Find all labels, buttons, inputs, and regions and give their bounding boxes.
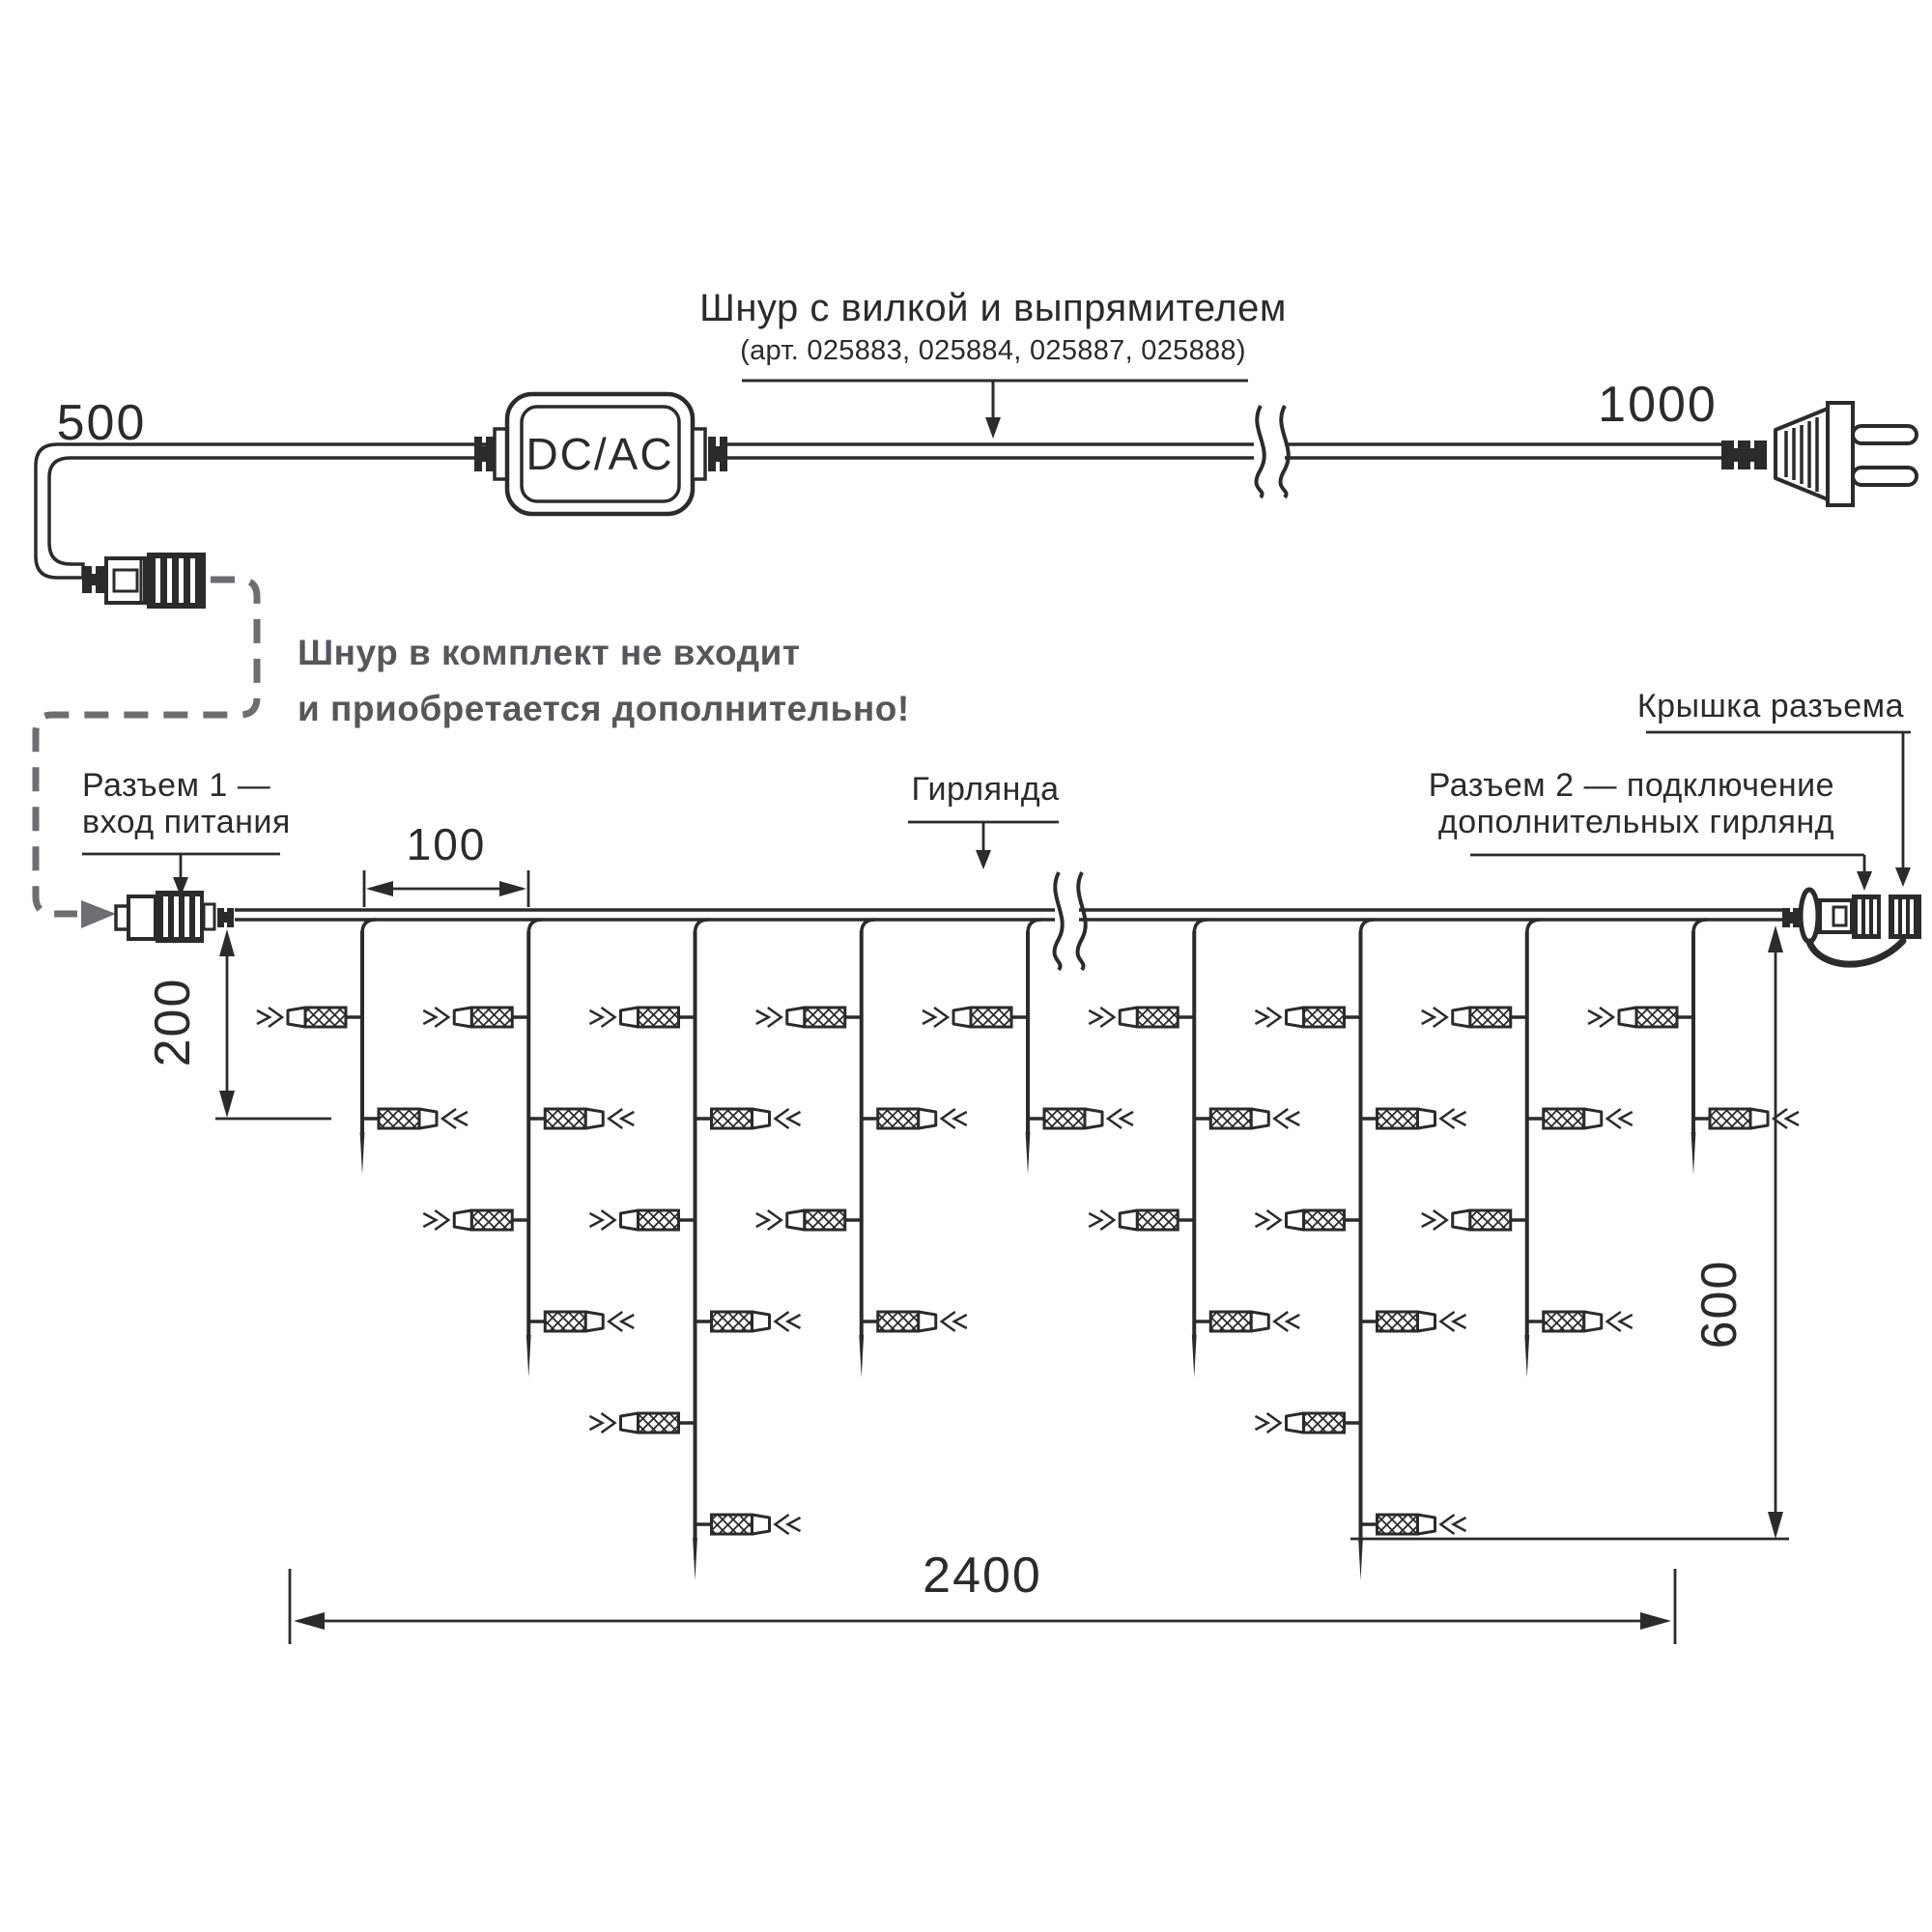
cap-tether-cord bbox=[1809, 941, 1903, 964]
led-bulb-icon bbox=[590, 1210, 696, 1230]
cord-break-symbol bbox=[1256, 406, 1288, 497]
dim-100: 100 bbox=[364, 819, 528, 907]
led-bulb-icon bbox=[862, 1312, 967, 1331]
light-rays-icon bbox=[1454, 1112, 1466, 1125]
dc-ac-label: DC/AC bbox=[526, 429, 673, 479]
light-rays-icon bbox=[923, 1010, 935, 1024]
light-rays-icon bbox=[1089, 1010, 1101, 1024]
led-bulb-icon bbox=[923, 1008, 1028, 1027]
icicle-drops bbox=[257, 920, 1799, 1580]
drop-wire-tip bbox=[693, 1538, 697, 1580]
connector1-arrow bbox=[173, 854, 188, 896]
drop-wire-tip bbox=[1524, 1335, 1529, 1378]
led-bulb-icon bbox=[862, 1109, 967, 1128]
light-rays-icon bbox=[1454, 1315, 1466, 1328]
led-bulb-icon bbox=[756, 1210, 862, 1230]
led-bulb-icon bbox=[590, 1008, 696, 1027]
light-rays-icon bbox=[1287, 1112, 1299, 1125]
light-rays-icon bbox=[1256, 1416, 1268, 1430]
light-rays-icon bbox=[1121, 1112, 1133, 1125]
garland-drop bbox=[257, 920, 468, 1175]
light-rays-icon bbox=[1256, 1010, 1268, 1024]
light-rays-icon bbox=[590, 1010, 603, 1024]
light-rays-icon bbox=[1620, 1112, 1633, 1125]
led-bulb-icon bbox=[590, 1413, 696, 1433]
led-bulb-icon bbox=[1527, 1109, 1633, 1128]
led-bulb-icon bbox=[528, 1312, 634, 1331]
led-bulb-icon bbox=[1194, 1109, 1299, 1128]
light-rays-icon bbox=[1588, 1010, 1601, 1024]
light-rays-icon bbox=[954, 1315, 967, 1328]
light-rays-icon bbox=[621, 1112, 634, 1125]
dim-2400-label: 2400 bbox=[923, 1548, 1042, 1604]
connector1-hardware bbox=[116, 891, 234, 943]
garland-arrow bbox=[976, 822, 991, 869]
dim-600-label: 600 bbox=[1691, 1260, 1747, 1350]
led-bulb-icon bbox=[1089, 1210, 1194, 1230]
connector1-label-line1: Разъем 1 — bbox=[82, 767, 270, 804]
garland-drop bbox=[923, 920, 1133, 1175]
cord-subtitle: (арт. 025883, 025884, 025887, 025888) bbox=[740, 335, 1246, 366]
light-rays-icon bbox=[1786, 1112, 1799, 1125]
cord-title-arrow bbox=[985, 381, 1001, 439]
garland-drop bbox=[756, 920, 967, 1378]
drop-wire-tip bbox=[1192, 1335, 1197, 1378]
garland-label: Гирлянда bbox=[911, 771, 1059, 808]
drop-wire-tip bbox=[526, 1335, 531, 1378]
cord-end-connector bbox=[82, 553, 206, 609]
connector2-leader bbox=[1470, 855, 1872, 891]
led-bulb-icon bbox=[362, 1109, 468, 1128]
garland-wire bbox=[235, 910, 1782, 920]
led-bulb-icon bbox=[423, 1210, 528, 1230]
light-rays-icon bbox=[1089, 1213, 1101, 1227]
led-bulb-icon bbox=[1028, 1109, 1133, 1128]
dim-2400: 2400 bbox=[290, 1548, 1675, 1644]
light-rays-icon bbox=[788, 1518, 801, 1531]
led-bulb-icon bbox=[1361, 1109, 1466, 1128]
led-bulb-icon bbox=[1527, 1312, 1633, 1331]
not-included-arrow bbox=[81, 900, 116, 928]
led-bulb-icon bbox=[696, 1109, 801, 1128]
led-bulb-icon bbox=[1256, 1210, 1361, 1230]
led-bulb-icon bbox=[1256, 1008, 1361, 1027]
garland-drop bbox=[590, 920, 801, 1580]
note-line1: Шнур в комплект не входит bbox=[298, 633, 800, 672]
diagram-page: Шнур с вилкой и выпрямителем (арт. 02588… bbox=[0, 0, 1932, 1932]
light-rays-icon bbox=[954, 1112, 967, 1125]
dc-ac-adapter: DC/AC bbox=[474, 394, 727, 514]
connector2-label-line2: дополнительных гирлянд bbox=[1438, 804, 1834, 840]
light-rays-icon bbox=[788, 1112, 801, 1125]
drop-wire-tip bbox=[1026, 1132, 1031, 1175]
led-bulb-icon bbox=[423, 1008, 528, 1027]
garland-drop bbox=[1422, 920, 1633, 1378]
dim-200-label: 200 bbox=[145, 978, 201, 1067]
power-plug-icon bbox=[1721, 403, 1917, 505]
light-rays-icon bbox=[1422, 1010, 1435, 1024]
light-rays-icon bbox=[1454, 1518, 1466, 1531]
drop-wire-tip bbox=[1358, 1538, 1363, 1580]
drop-wire-tip bbox=[360, 1132, 365, 1175]
light-rays-icon bbox=[1287, 1315, 1299, 1328]
led-bulb-icon bbox=[257, 1008, 362, 1027]
led-bulb-icon bbox=[1693, 1109, 1799, 1128]
led-bulb-icon bbox=[1361, 1312, 1466, 1331]
cap-label: Крышка разъема bbox=[1637, 688, 1904, 724]
garland-drop bbox=[1256, 920, 1466, 1580]
light-rays-icon bbox=[590, 1416, 603, 1430]
garland-drop bbox=[1089, 920, 1299, 1378]
cord-right bbox=[727, 444, 1721, 458]
cord-title: Шнур с вилкой и выпрямителем bbox=[699, 287, 1287, 329]
light-rays-icon bbox=[590, 1213, 603, 1227]
led-bulb-icon bbox=[696, 1515, 801, 1534]
light-rays-icon bbox=[1256, 1213, 1268, 1227]
led-bulb-icon bbox=[1422, 1210, 1527, 1230]
led-bulb-icon bbox=[1361, 1515, 1466, 1534]
led-bulb-icon bbox=[1422, 1008, 1527, 1027]
drop-wire-tip bbox=[1691, 1132, 1696, 1175]
not-included-dashed-path bbox=[36, 580, 257, 914]
light-rays-icon bbox=[455, 1112, 468, 1125]
light-rays-icon bbox=[756, 1010, 769, 1024]
connector2-hardware bbox=[1782, 890, 1921, 964]
led-bulb-icon bbox=[696, 1312, 801, 1331]
garland-drop bbox=[423, 920, 634, 1378]
led-bulb-icon bbox=[1588, 1008, 1693, 1027]
light-rays-icon bbox=[257, 1010, 270, 1024]
dim-600: 600 bbox=[1350, 925, 1789, 1539]
light-rays-icon bbox=[756, 1213, 769, 1227]
light-rays-icon bbox=[1620, 1315, 1633, 1328]
note-line2: и приобретается дополнительно! bbox=[298, 689, 910, 728]
led-bulb-icon bbox=[756, 1008, 862, 1027]
led-bulb-icon bbox=[528, 1109, 634, 1128]
light-rays-icon bbox=[788, 1315, 801, 1328]
led-bulb-icon bbox=[1089, 1008, 1194, 1027]
drop-wire-tip bbox=[859, 1335, 864, 1378]
connector1-label-line2: вход питания bbox=[82, 804, 291, 840]
dim-1000-label: 1000 bbox=[1598, 377, 1718, 433]
light-rays-icon bbox=[1422, 1213, 1435, 1227]
light-rays-icon bbox=[423, 1010, 436, 1024]
light-rays-icon bbox=[423, 1213, 436, 1227]
garland-drop bbox=[1588, 920, 1799, 1175]
connector2-label-line1: Разъем 2 — подключение bbox=[1429, 767, 1834, 804]
dim-100-label: 100 bbox=[407, 819, 487, 869]
garland-wiring-diagram: Шнур с вилкой и выпрямителем (арт. 02588… bbox=[0, 0, 1932, 1932]
led-bulb-icon bbox=[1256, 1413, 1361, 1433]
led-bulb-icon bbox=[1194, 1312, 1299, 1331]
light-rays-icon bbox=[621, 1315, 634, 1328]
